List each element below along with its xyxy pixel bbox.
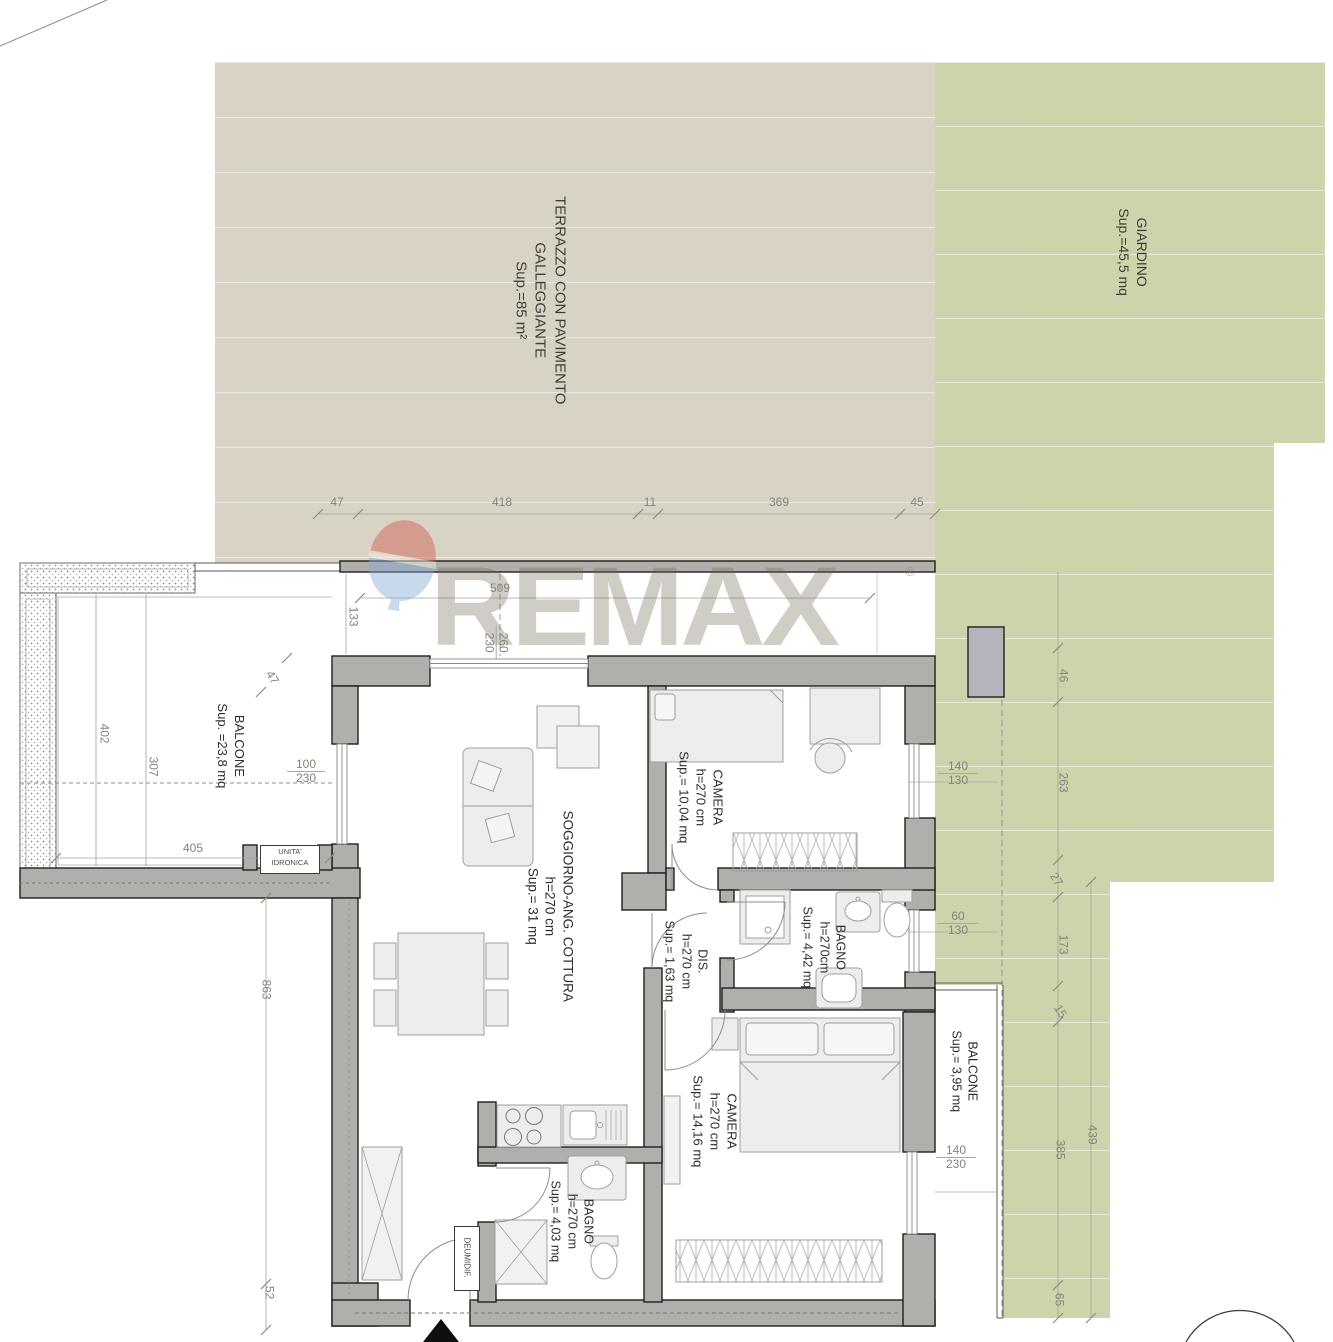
watermark-registered: ®: [905, 564, 915, 579]
room-label-balcone-left: BALCONE Sup. =23,8 mq: [213, 661, 247, 831]
room-label-camera-1: CAMERA h=270 cm Sup.= 10,04 mq: [675, 717, 726, 877]
dim-top-47: 47: [317, 496, 357, 509]
dim-263: 263: [1056, 763, 1069, 803]
room-label-balcone-right: BALCONE Sup.= 3,95 mq: [948, 996, 981, 1146]
dim-385: 385: [1053, 1130, 1066, 1170]
room-label-soggiorno: SOGGIORNO-ANG. COTTURA h=270 cm Sup.= 31…: [524, 791, 577, 1021]
room-label-dis: DIS. h=270 cm Sup.= 1,63 mq: [662, 896, 711, 1026]
dim-top-369: 369: [754, 496, 804, 509]
dim-60-130: 60 130: [938, 910, 978, 937]
floorplan-canvas: REMAX ® TERRAZZO CON PAVIMENTO GALLEGGIA…: [0, 0, 1333, 1342]
dim-307: 307: [146, 745, 159, 789]
corner-diagonal-line: [0, 0, 107, 46]
dim-top-418: 418: [477, 496, 527, 509]
dim-65: 65: [1052, 1285, 1065, 1315]
room-label-bagno-2: BAGNO h=270 cm Sup.= 4,03 mq: [548, 1156, 597, 1286]
dim-863: 863: [259, 968, 272, 1012]
dim-100-230: 100 230: [287, 758, 325, 785]
entrance-arrow-icon: [423, 1319, 459, 1342]
dim-46: 46: [1056, 661, 1069, 691]
terrace-label: TERRAZZO CON PAVIMENTO GALLEGGIANTE Sup.…: [511, 130, 570, 470]
garden-label: GIARDINO Sup.=45,5 mq: [1115, 147, 1151, 357]
compass-arc: [1186, 1310, 1294, 1342]
dim-405: 405: [163, 842, 223, 855]
dim-140-230: 140 230: [936, 1144, 976, 1171]
dim-52: 52: [262, 1278, 275, 1308]
dim-140-130: 140 130: [938, 760, 978, 787]
dim-133: 133: [346, 597, 359, 637]
dim-260-230: 260 230: [482, 626, 509, 660]
unita-idronica-box: UNITA' IDRONICA: [260, 845, 320, 874]
room-label-bagno-1: BAGNO h=270cm Sup.= 4,42 mq: [800, 882, 849, 1012]
dim-509: 509: [470, 582, 530, 595]
room-label-camera-2: CAMERA h=270 cm Sup.= 14,16 mq: [689, 1041, 740, 1201]
dim-439: 439: [1085, 1115, 1098, 1155]
dim-top-45: 45: [897, 496, 937, 509]
deumidif-box: DEUMIDIF.: [454, 1226, 480, 1291]
dim-top-11: 11: [635, 496, 665, 509]
walls: [20, 561, 1004, 1326]
dim-402: 402: [97, 712, 110, 756]
dim-173: 173: [1056, 925, 1069, 965]
